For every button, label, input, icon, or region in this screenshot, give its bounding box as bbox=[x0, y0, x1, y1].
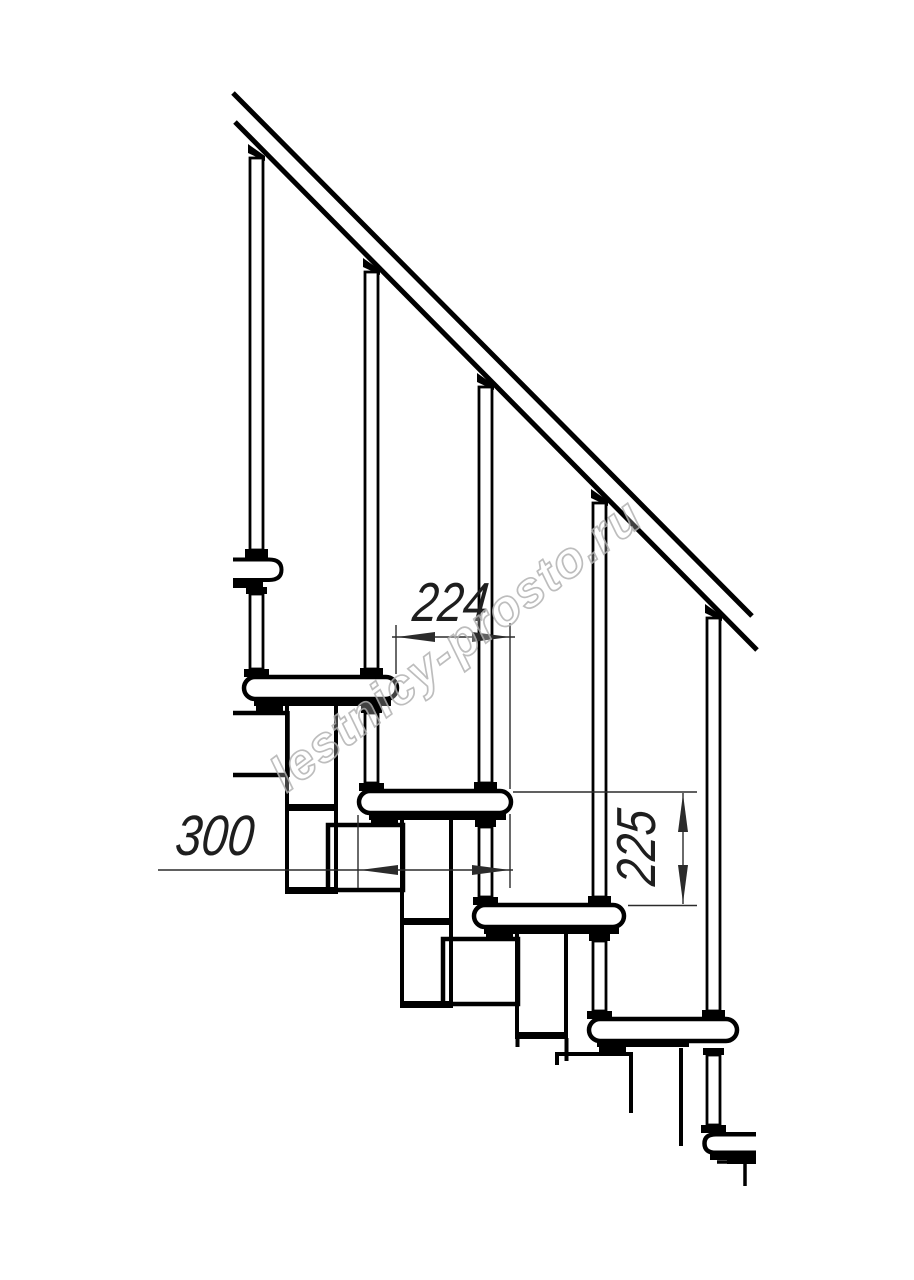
baluster-1-lower-shaft bbox=[250, 594, 263, 669]
step-5-cut-tread bbox=[705, 1134, 757, 1153]
baluster-5-upper-shaft bbox=[707, 618, 720, 1011]
baluster-2-upper-shaft bbox=[365, 272, 378, 669]
staircase-drawing-canvas: 224 300 225 lestnicy-prosto.ru bbox=[0, 0, 914, 1280]
socket-module-4-cut-outline bbox=[557, 1054, 631, 1113]
step-4-mount-foot bbox=[599, 1045, 626, 1052]
dimension-rise-label: 225 bbox=[605, 805, 667, 889]
socket-module-3 bbox=[443, 939, 518, 1004]
baluster-1-base-connector-front bbox=[244, 669, 269, 677]
baluster-1-upper-shaft bbox=[250, 158, 263, 550]
baluster-3-upper-collar-front bbox=[474, 782, 497, 791]
dim-rise-arrow-up bbox=[678, 794, 688, 832]
socket-module-2 bbox=[328, 825, 403, 890]
column-3-divider bbox=[515, 1032, 568, 1039]
baluster-4-lower-shaft bbox=[593, 941, 606, 1011]
baluster-3-base-connector-front bbox=[473, 897, 498, 905]
column-2-divider bbox=[400, 918, 453, 925]
column-1-divider bbox=[285, 804, 338, 811]
step-2-tread bbox=[359, 791, 511, 813]
dimension-tread-label: 300 bbox=[173, 805, 258, 868]
step-2-mount-foot bbox=[371, 818, 398, 825]
step-4-tread bbox=[589, 1019, 737, 1041]
step-3-tread bbox=[474, 905, 624, 927]
baluster-5-lower-shaft bbox=[707, 1055, 720, 1125]
step-0-underplate bbox=[233, 580, 263, 588]
staircase-technical-drawing: 224 300 225 lestnicy-prosto.ru bbox=[0, 0, 914, 1280]
baluster-4-base-connector-front bbox=[587, 1011, 612, 1019]
step-0-cut-tread bbox=[233, 560, 282, 581]
baluster-2-base-connector-front bbox=[359, 783, 384, 791]
step-3-mount-foot bbox=[486, 932, 513, 939]
baluster-3-lower-shaft bbox=[479, 827, 492, 897]
baluster-5-upper-collar-front bbox=[702, 1010, 725, 1019]
step-1-mount-foot bbox=[256, 704, 283, 711]
baluster-1-upper-collar-front bbox=[245, 549, 268, 558]
baluster-5-base-connector-front bbox=[701, 1125, 726, 1133]
dim-rise-arrow-down bbox=[678, 865, 688, 903]
handrail-lower-line bbox=[235, 122, 757, 650]
baluster-4-upper-collar-front bbox=[588, 896, 611, 905]
dim-tread-arrow-left bbox=[360, 865, 398, 875]
